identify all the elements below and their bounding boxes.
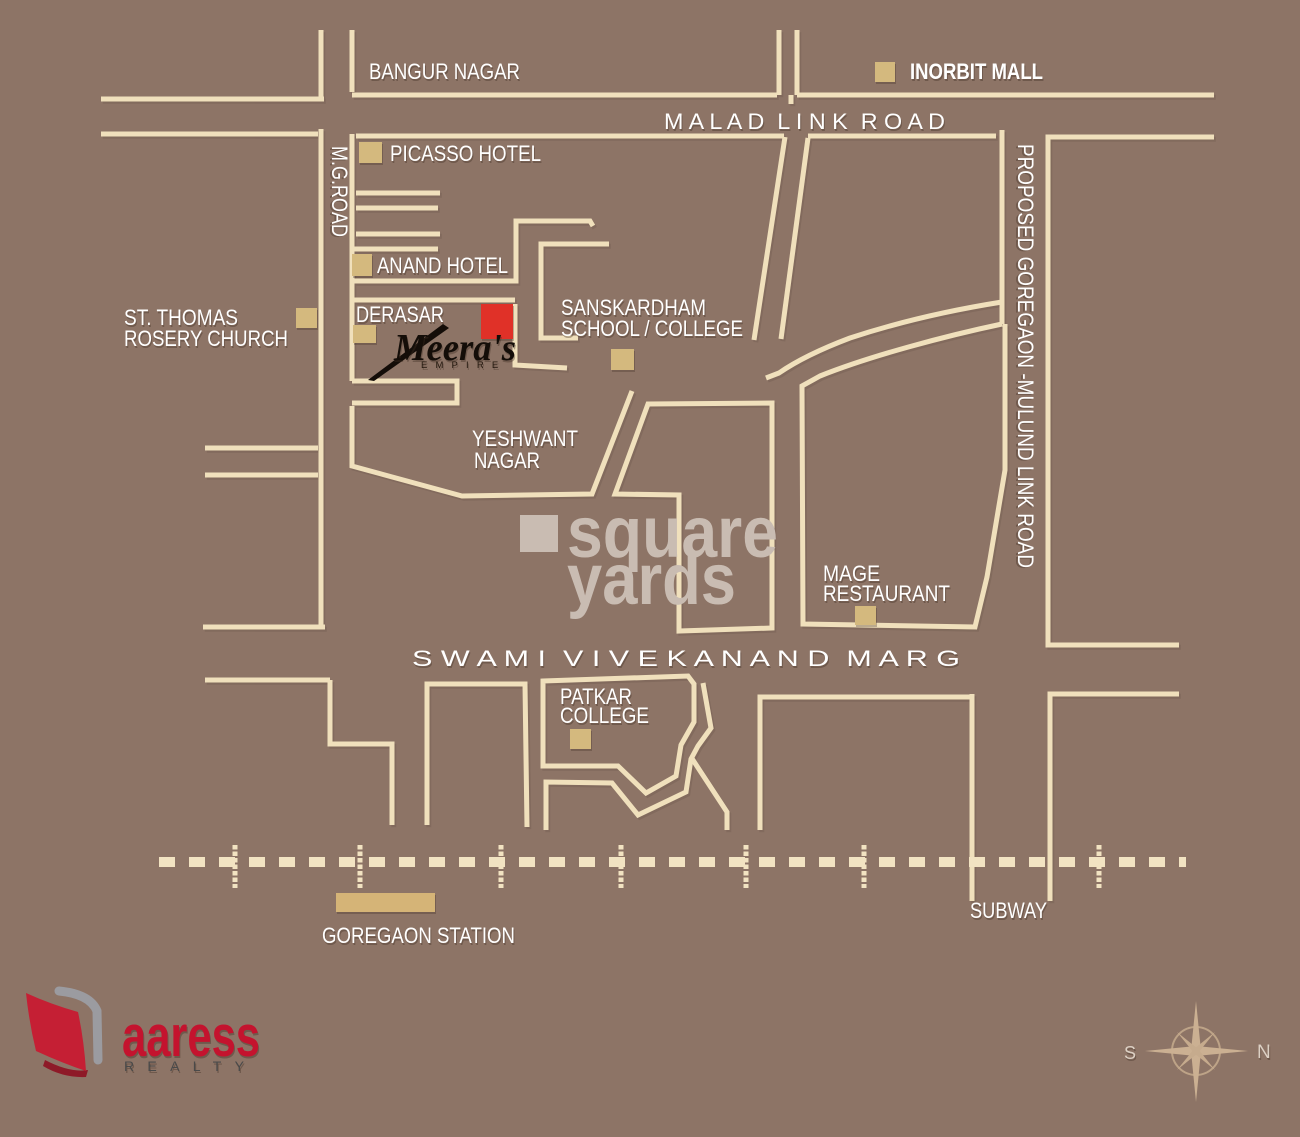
svg-text:BANGUR NAGAR: BANGUR NAGAR [369,59,520,84]
svg-text:SUBWAY: SUBWAY [970,898,1047,923]
svg-text:DERASAR: DERASAR [356,302,444,327]
svg-text:NAGAR: NAGAR [474,448,540,473]
svg-text:REALTY: REALTY [124,1058,256,1074]
svg-text:N: N [1257,1042,1271,1063]
svg-text:M A L A D L I N K R O A D: M A L A D L I N K R O A D [664,109,945,134]
svg-text:RESTAURANT: RESTAURANT [823,581,950,606]
svg-text:EMPIRE: EMPIRE [421,360,506,371]
svg-text:INORBIT MALL: INORBIT MALL [910,59,1043,84]
svg-text:S: S [1124,1043,1136,1063]
svg-text:M.G.ROAD: M.G.ROAD [327,146,352,237]
svg-text:PICASSO HOTEL: PICASSO HOTEL [390,141,541,166]
svg-text:COLLEGE: COLLEGE [560,703,649,728]
svg-text:GOREGAON STATION: GOREGAON STATION [322,923,515,948]
svg-text:SCHOOL / COLLEGE: SCHOOL / COLLEGE [561,316,743,341]
svg-text:yards: yards [567,540,736,620]
svg-text:ANAND HOTEL: ANAND HOTEL [377,253,508,278]
svg-text:PROPOSED GOREGAON -MULUND LINK: PROPOSED GOREGAON -MULUND LINK ROAD [1013,144,1038,568]
svg-text:ROSERY CHURCH: ROSERY CHURCH [124,326,288,351]
svg-text:S W A M I V I V E K A N A N D: S W A M I V I V E K A N A N D M A R G [412,646,960,671]
